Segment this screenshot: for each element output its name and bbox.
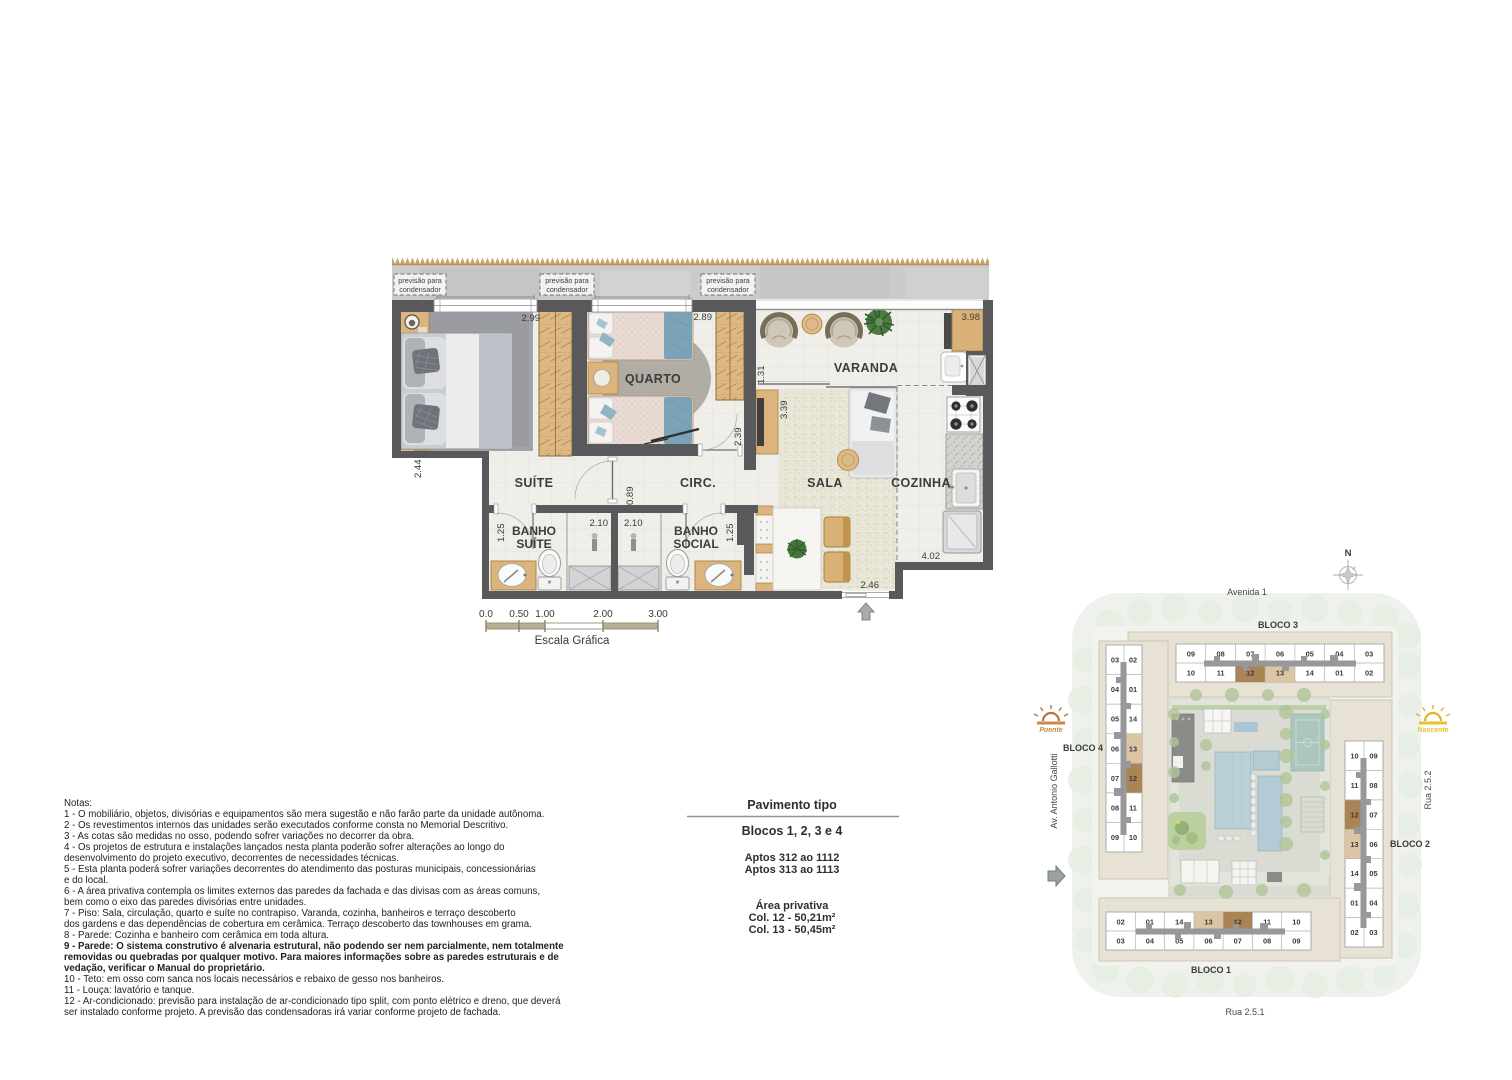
svg-text:2.10: 2.10 [590, 518, 609, 529]
svg-text:10: 10 [1187, 668, 1195, 677]
svg-text:previsão para: previsão para [706, 276, 750, 285]
svg-text:05: 05 [1111, 715, 1119, 724]
svg-text:vedação, verificar o Manual do: vedação, verificar o Manual do proprietá… [64, 963, 265, 974]
svg-text:CIRC.: CIRC. [680, 476, 716, 490]
svg-text:09: 09 [1369, 752, 1377, 761]
svg-text:Nascente: Nascente [1417, 727, 1448, 734]
svg-text:bem como o eixo das paredes di: bem como o eixo das paredes divisórias e… [64, 897, 306, 908]
svg-text:2.89: 2.89 [694, 312, 713, 323]
svg-text:10: 10 [1292, 917, 1300, 926]
svg-text:BLOCO 3: BLOCO 3 [1258, 620, 1298, 630]
svg-text:06: 06 [1276, 649, 1284, 658]
svg-text:1.25: 1.25 [496, 524, 507, 543]
svg-text:SALA: SALA [807, 476, 843, 490]
svg-text:9 - Parede: O sistema construt: 9 - Parede: O sistema construtivo é alve… [64, 941, 564, 952]
svg-text:Notas:: Notas: [64, 798, 92, 809]
svg-text:condensador: condensador [707, 285, 749, 294]
svg-text:Pavimento tipo: Pavimento tipo [747, 798, 837, 812]
svg-text:Rua 2.5.2: Rua 2.5.2 [1423, 770, 1433, 809]
svg-text:06: 06 [1204, 936, 1212, 945]
svg-text:5 - Esta planta poderá sofrer: 5 - Esta planta poderá sofrer variações … [64, 864, 536, 875]
svg-text:14: 14 [1350, 869, 1359, 878]
svg-text:3.00: 3.00 [648, 609, 668, 620]
svg-text:6 - A área privativa contempla: 6 - A área privativa contempla os limite… [64, 886, 540, 897]
svg-text:1 - O mobiliário, objetos, div: 1 - O mobiliário, objetos, divisórias e … [64, 809, 544, 820]
svg-text:01: 01 [1335, 668, 1343, 677]
svg-text:Aptos 313 ao 1113: Aptos 313 ao 1113 [745, 864, 840, 876]
svg-text:Blocos 1, 2, 3 e 4: Blocos 1, 2, 3 e 4 [742, 824, 843, 838]
svg-text:14: 14 [1175, 917, 1184, 926]
svg-text:04: 04 [1369, 899, 1378, 908]
svg-text:12: 12 [1129, 774, 1137, 783]
svg-text:11: 11 [1129, 803, 1137, 812]
svg-text:3.98: 3.98 [962, 312, 981, 323]
svg-text:07: 07 [1369, 810, 1377, 819]
svg-text:SOCIAL: SOCIAL [673, 537, 718, 551]
svg-text:04: 04 [1146, 936, 1155, 945]
svg-text:4 - Os projetos de estrutura e: 4 - Os projetos de estrutura e instalaçõ… [64, 842, 505, 853]
svg-text:02: 02 [1365, 668, 1373, 677]
svg-text:04: 04 [1111, 685, 1120, 694]
svg-text:3 - As cotas são medidas no os: 3 - As cotas são medidas no osso, podend… [64, 831, 414, 842]
svg-text:03: 03 [1116, 936, 1124, 945]
svg-text:03: 03 [1365, 649, 1373, 658]
svg-text:4.02: 4.02 [922, 551, 941, 562]
svg-text:Poente: Poente [1039, 727, 1062, 734]
svg-text:12: 12 [1350, 810, 1358, 819]
svg-text:N: N [1345, 548, 1352, 559]
svg-text:13: 13 [1350, 840, 1358, 849]
svg-text:3.39: 3.39 [779, 401, 790, 420]
svg-text:condensador: condensador [399, 285, 441, 294]
svg-text:1.25: 1.25 [725, 524, 736, 543]
svg-text:09: 09 [1187, 649, 1195, 658]
svg-text:Escala Gráfica: Escala Gráfica [535, 635, 610, 647]
svg-text:7 - Piso: Sala, circulação, qu: 7 - Piso: Sala, circulação, quarto e suí… [64, 908, 516, 919]
svg-text:03: 03 [1111, 656, 1119, 665]
svg-text:dos gardens e das dependências: dos gardens e das dependências de cobert… [64, 919, 532, 930]
svg-text:2 - Os revestimentos internos: 2 - Os revestimentos internos das unidad… [64, 820, 508, 831]
svg-text:Aptos 312 ao 1112: Aptos 312 ao 1112 [745, 852, 840, 864]
svg-text:COZINHA: COZINHA [891, 476, 951, 490]
svg-text:Área privativa: Área privativa [756, 899, 830, 912]
svg-text:07: 07 [1111, 774, 1119, 783]
svg-text:8 - Parede: Cozinha e banheiro: 8 - Parede: Cozinha e banheiro com cerâm… [64, 930, 329, 941]
svg-text:removidas ou quebradas por qua: removidas ou quebradas por qualquer moti… [64, 952, 559, 963]
svg-text:03: 03 [1369, 928, 1377, 937]
svg-text:Rua 2.5.1: Rua 2.5.1 [1225, 1007, 1264, 1017]
svg-text:previsão para: previsão para [545, 276, 589, 285]
svg-text:Av. Antonio Gallotti: Av. Antonio Gallotti [1049, 753, 1059, 828]
svg-text:06: 06 [1369, 840, 1377, 849]
svg-text:0.0: 0.0 [479, 609, 493, 620]
svg-text:condensador: condensador [546, 285, 588, 294]
svg-text:13: 13 [1129, 744, 1137, 753]
svg-text:BANHO: BANHO [512, 524, 556, 538]
svg-text:09: 09 [1111, 833, 1119, 842]
svg-text:0.50: 0.50 [509, 609, 529, 620]
svg-text:1.00: 1.00 [535, 609, 555, 620]
svg-text:02: 02 [1350, 928, 1358, 937]
svg-text:1.31: 1.31 [756, 366, 767, 385]
svg-text:ser instalado conforme projeto: ser instalado conforme projeto. A previs… [64, 1007, 501, 1018]
svg-text:BLOCO 2: BLOCO 2 [1390, 839, 1430, 849]
svg-text:SUÍTE: SUÍTE [515, 475, 554, 490]
svg-text:02: 02 [1116, 917, 1124, 926]
svg-text:2.44: 2.44 [413, 460, 424, 479]
svg-text:VARANDA: VARANDA [834, 361, 898, 375]
svg-text:08: 08 [1263, 936, 1271, 945]
svg-text:BLOCO 1: BLOCO 1 [1191, 965, 1231, 975]
svg-text:2.00: 2.00 [593, 609, 613, 620]
svg-text:10: 10 [1129, 833, 1137, 842]
svg-text:desenvolvimento do projeto exe: desenvolvimento do projeto executivo, de… [64, 853, 399, 864]
svg-text:12 - Ar-condicionado: previsão: 12 - Ar-condicionado: previsão para inst… [64, 996, 561, 1007]
svg-text:2.99: 2.99 [522, 313, 541, 324]
svg-text:10: 10 [1350, 752, 1358, 761]
svg-text:08: 08 [1111, 803, 1119, 812]
svg-text:11 - Louça: lavatório e tanque: 11 - Louça: lavatório e tanque. [64, 985, 194, 996]
svg-text:01: 01 [1350, 899, 1358, 908]
svg-text:e do local.: e do local. [64, 875, 108, 886]
svg-text:14: 14 [1129, 715, 1138, 724]
svg-text:02: 02 [1129, 656, 1137, 665]
svg-text:14: 14 [1306, 668, 1315, 677]
svg-text:2.46: 2.46 [861, 580, 880, 591]
svg-text:11: 11 [1217, 668, 1225, 677]
svg-text:09: 09 [1292, 936, 1300, 945]
svg-text:2.10: 2.10 [624, 518, 643, 529]
svg-text:0.89: 0.89 [625, 487, 636, 506]
svg-text:BANHO: BANHO [674, 524, 718, 538]
svg-text:06: 06 [1111, 744, 1119, 753]
svg-text:SUÍTE: SUÍTE [516, 536, 551, 551]
svg-text:BLOCO 4: BLOCO 4 [1063, 743, 1103, 753]
svg-text:QUARTO: QUARTO [625, 372, 681, 386]
svg-text:previsão para: previsão para [398, 276, 442, 285]
svg-text:10 - Teto: em osso com sanca n: 10 - Teto: em osso com sanca nos locais … [64, 974, 444, 985]
svg-text:Avenida 1: Avenida 1 [1227, 587, 1267, 597]
svg-text:08: 08 [1369, 781, 1377, 790]
svg-text:2.39: 2.39 [733, 428, 744, 447]
svg-text:11: 11 [1351, 781, 1359, 790]
svg-text:Col. 12 - 50,21m²: Col. 12 - 50,21m² [749, 912, 836, 924]
svg-text:Col. 13 - 50,45m²: Col. 13 - 50,45m² [749, 924, 836, 936]
svg-text:13: 13 [1204, 917, 1212, 926]
svg-text:01: 01 [1129, 685, 1137, 694]
svg-text:07: 07 [1234, 936, 1242, 945]
svg-text:05: 05 [1369, 869, 1377, 878]
